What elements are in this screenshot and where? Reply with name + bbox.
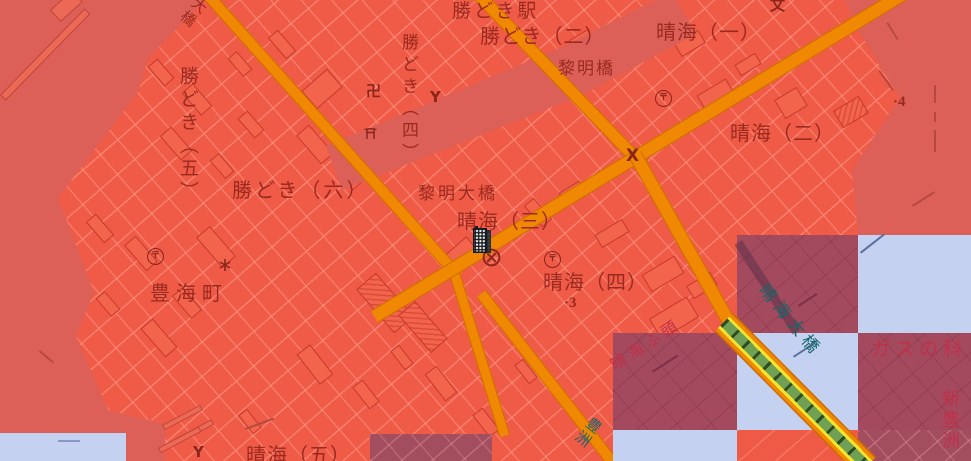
fire-station-icon: Y — [193, 445, 208, 460]
police-box-icon: X — [626, 148, 643, 165]
map-label-kachidoki-5chome: 勝どき（五） — [178, 66, 197, 204]
map-label-harumi-4chome: 晴海（四） — [543, 272, 648, 292]
map-label-kachidoki-2chome: 勝どき（二） — [480, 26, 605, 46]
map-label-kachidoki-station: 勝どき駅 — [452, 2, 539, 21]
map-canvas[interactable]: 〒〒〒XYY卍文勝どき駅勝どき（二）晴海（一）黎明橋勝どき（四）勝どき（五）勝ど… — [0, 0, 971, 461]
map-label-spot-elevation-4: ·4 — [893, 95, 906, 110]
map-label-kachidoki-4chome: 勝どき（四） — [399, 33, 416, 165]
boundary-dash — [58, 440, 80, 442]
post-office-icon: 〒 — [147, 248, 164, 265]
hazard-overlay-tile-clear — [613, 430, 737, 461]
hazard-overlay-tile-clear — [858, 235, 971, 333]
lighthouse-icon — [218, 258, 232, 272]
post-office-icon: 〒 — [655, 90, 672, 107]
building-marker[interactable] — [472, 226, 494, 255]
map-label-shin-toyosu: 新豊洲 — [940, 389, 958, 452]
hazard-overlay-tile-clear — [0, 433, 126, 461]
school-icon: 文 — [770, 0, 785, 13]
map-label-spot-elevation-3: ·3 — [564, 296, 577, 311]
map-label-kachidoki-6chome: 勝どき（六） — [232, 180, 369, 200]
map-label-reimei-ohashi-bridge: 黎明大橋 — [418, 186, 498, 203]
shrine-torii-icon — [364, 128, 377, 141]
map-label-harumi-1chome: 晴海（一） — [656, 22, 761, 42]
map-label-toyomi-cho: 豊海町 — [150, 283, 228, 303]
water-boundary-dash — [934, 85, 936, 103]
map-label-gas-science-museum: ガスの科 — [871, 340, 967, 359]
fire-station-icon: Y — [430, 90, 445, 105]
map-label-harumi-5chome: 晴海（五） — [246, 445, 351, 461]
map-label-harumi-2chome: 晴海（二） — [730, 123, 835, 143]
hazard-overlay-tile-darkland — [370, 434, 492, 461]
water-boundary-dash — [934, 112, 936, 122]
temple-manji-icon: 卍 — [366, 84, 381, 99]
building-icon — [472, 226, 494, 255]
map-label-reimei-bridge: 黎明橋 — [558, 61, 615, 78]
water-boundary-dash — [934, 130, 936, 152]
post-office-icon: 〒 — [544, 251, 561, 268]
